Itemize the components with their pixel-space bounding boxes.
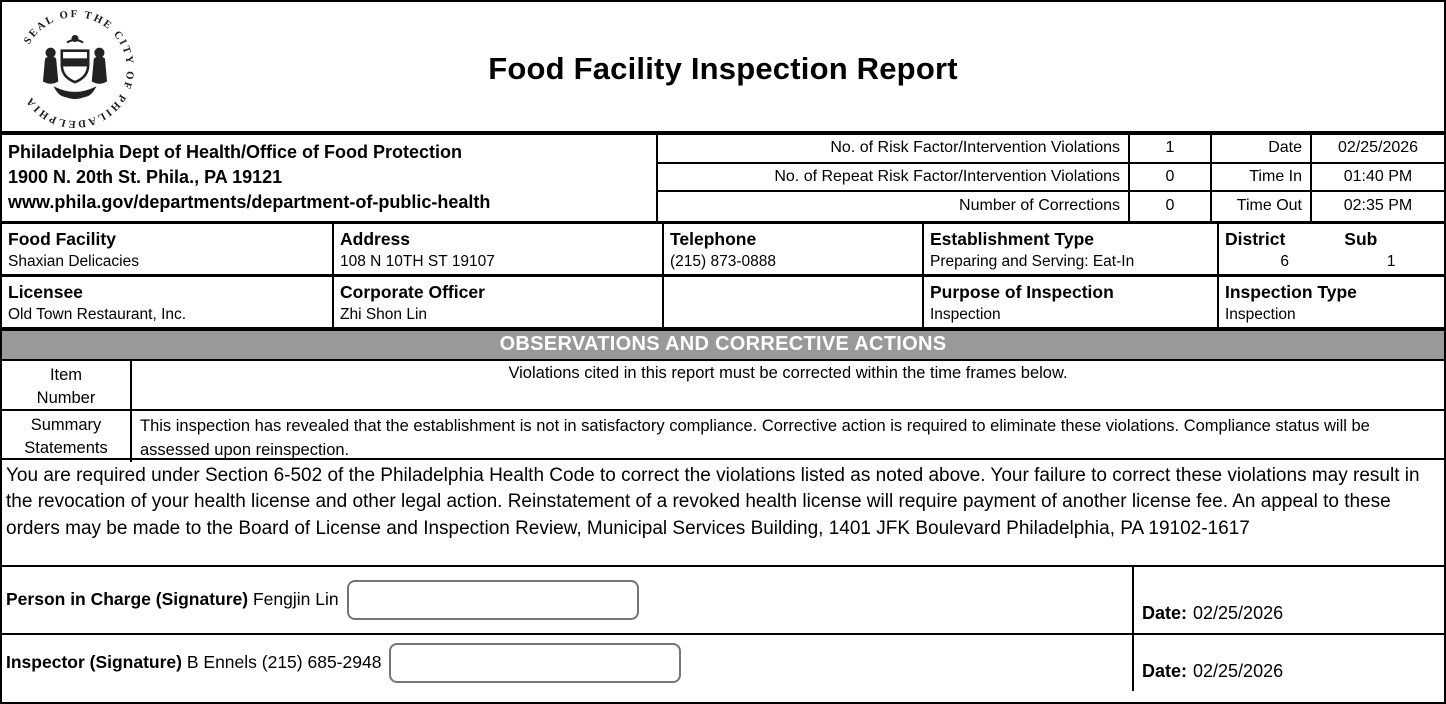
violations-note: Violations cited in this report must be …	[132, 361, 1444, 410]
address-cell: Address 108 N 10TH ST 19107	[332, 224, 662, 274]
repeat-violations-label: No. of Repeat Risk Factor/Intervention V…	[656, 164, 1128, 193]
inspector-date-cell: Date: 02/25/2026	[1132, 635, 1444, 691]
food-facility-value: Shaxian Delicacies	[8, 251, 326, 272]
district-value: 6	[1225, 251, 1344, 272]
summary-statements-text: This inspection has revealed that the es…	[132, 411, 1444, 462]
risk-violations-label: No. of Risk Factor/Intervention Violatio…	[656, 135, 1128, 164]
district-label: District	[1225, 227, 1344, 251]
establishment-type-cell: Establishment Type Preparing and Serving…	[922, 224, 1217, 274]
sub-value: 1	[1344, 251, 1438, 272]
report-header: SEAL OF THE CITY OF PHILADELPHIA Food Fa…	[2, 2, 1444, 135]
licensee-row: Licensee Old Town Restaurant, Inc. Corpo…	[2, 277, 1444, 331]
person-in-charge-name: Fengjin Lin	[253, 589, 339, 610]
inspector-signature-area: Inspector (Signature) B Ennels (215) 685…	[2, 635, 1132, 691]
food-facility-label: Food Facility	[8, 227, 326, 251]
time-out-value: 02:35 PM	[1310, 192, 1444, 221]
time-out-label: Time Out	[1210, 192, 1310, 221]
inspector-row: Inspector (Signature) B Ennels (215) 685…	[2, 635, 1444, 691]
legal-notice: You are required under Section 6-502 of …	[2, 460, 1444, 567]
inspector-signature-field[interactable]	[389, 643, 681, 683]
page-title: Food Facility Inspection Report	[2, 2, 1444, 135]
licensee-value: Old Town Restaurant, Inc.	[8, 304, 326, 325]
telephone-label: Telephone	[670, 227, 916, 251]
sub-label: Sub	[1344, 227, 1438, 251]
inspection-report-page: SEAL OF THE CITY OF PHILADELPHIA Food Fa…	[0, 0, 1446, 704]
inspector-name: B Ennels (215) 685-2948	[187, 652, 382, 673]
inspector-date-value: 02/25/2026	[1193, 661, 1283, 682]
district-sub-cell: District 6 Sub 1	[1217, 224, 1444, 274]
repeat-violations-value: 0	[1128, 164, 1210, 193]
food-facility-cell: Food Facility Shaxian Delicacies	[2, 224, 332, 274]
agency-line1: Philadelphia Dept of Health/Office of Fo…	[8, 140, 650, 165]
licensee-cell: Licensee Old Town Restaurant, Inc.	[2, 277, 332, 327]
person-in-charge-signature-field[interactable]	[347, 580, 639, 620]
inspection-type-value: Inspection	[1225, 304, 1438, 325]
inspector-label: Inspector (Signature)	[6, 652, 187, 673]
telephone-value: (215) 873-0888	[670, 251, 916, 272]
date-label: Date	[1210, 135, 1310, 164]
corrections-value: 0	[1128, 192, 1210, 221]
purpose-value: Inspection	[930, 304, 1211, 325]
corporate-officer-label: Corporate Officer	[340, 280, 656, 304]
inspector-date-label: Date:	[1142, 661, 1187, 682]
person-in-charge-row: Person in Charge (Signature) Fengjin Lin…	[2, 567, 1444, 635]
address-label: Address	[340, 227, 656, 251]
agency-address-block: Philadelphia Dept of Health/Office of Fo…	[2, 135, 656, 221]
stats-table: Philadelphia Dept of Health/Office of Fo…	[2, 135, 1444, 224]
person-date-label: Date:	[1142, 603, 1187, 624]
person-in-charge-label: Person in Charge (Signature)	[6, 589, 253, 610]
facility-row: Food Facility Shaxian Delicacies Address…	[2, 224, 1444, 277]
item-number-row: Item Number Violations cited in this rep…	[2, 361, 1444, 411]
summary-row: Summary Statements This inspection has r…	[2, 411, 1444, 460]
person-date-value: 02/25/2026	[1193, 603, 1283, 624]
risk-violations-value: 1	[1128, 135, 1210, 164]
summary-statements-label: Summary Statements	[2, 411, 132, 462]
establishment-type-label: Establishment Type	[930, 227, 1211, 251]
inspection-type-cell: Inspection Type Inspection	[1217, 277, 1444, 327]
agency-url: www.phila.gov/departments/department-of-…	[8, 190, 650, 215]
person-in-charge-date-cell: Date: 02/25/2026	[1132, 567, 1444, 633]
person-in-charge-signature-area: Person in Charge (Signature) Fengjin Lin	[2, 567, 1132, 633]
establishment-type-value: Preparing and Serving: Eat-In	[930, 251, 1211, 272]
corporate-officer-value: Zhi Shon Lin	[340, 304, 656, 325]
address-value: 108 N 10TH ST 19107	[340, 251, 656, 272]
item-number-label: Item Number	[2, 361, 132, 410]
time-in-label: Time In	[1210, 164, 1310, 193]
date-value: 02/25/2026	[1310, 135, 1444, 164]
licensee-label: Licensee	[8, 280, 326, 304]
observations-section-header: OBSERVATIONS AND CORRECTIVE ACTIONS	[2, 331, 1444, 361]
corporate-officer-cell: Corporate Officer Zhi Shon Lin	[332, 277, 662, 327]
time-in-value: 01:40 PM	[1310, 164, 1444, 193]
empty-cell	[662, 277, 922, 327]
telephone-cell: Telephone (215) 873-0888	[662, 224, 922, 274]
inspection-type-label: Inspection Type	[1225, 280, 1438, 304]
purpose-cell: Purpose of Inspection Inspection	[922, 277, 1217, 327]
purpose-label: Purpose of Inspection	[930, 280, 1211, 304]
agency-line2: 1900 N. 20th St. Phila., PA 19121	[8, 165, 650, 190]
corrections-label: Number of Corrections	[656, 192, 1128, 221]
